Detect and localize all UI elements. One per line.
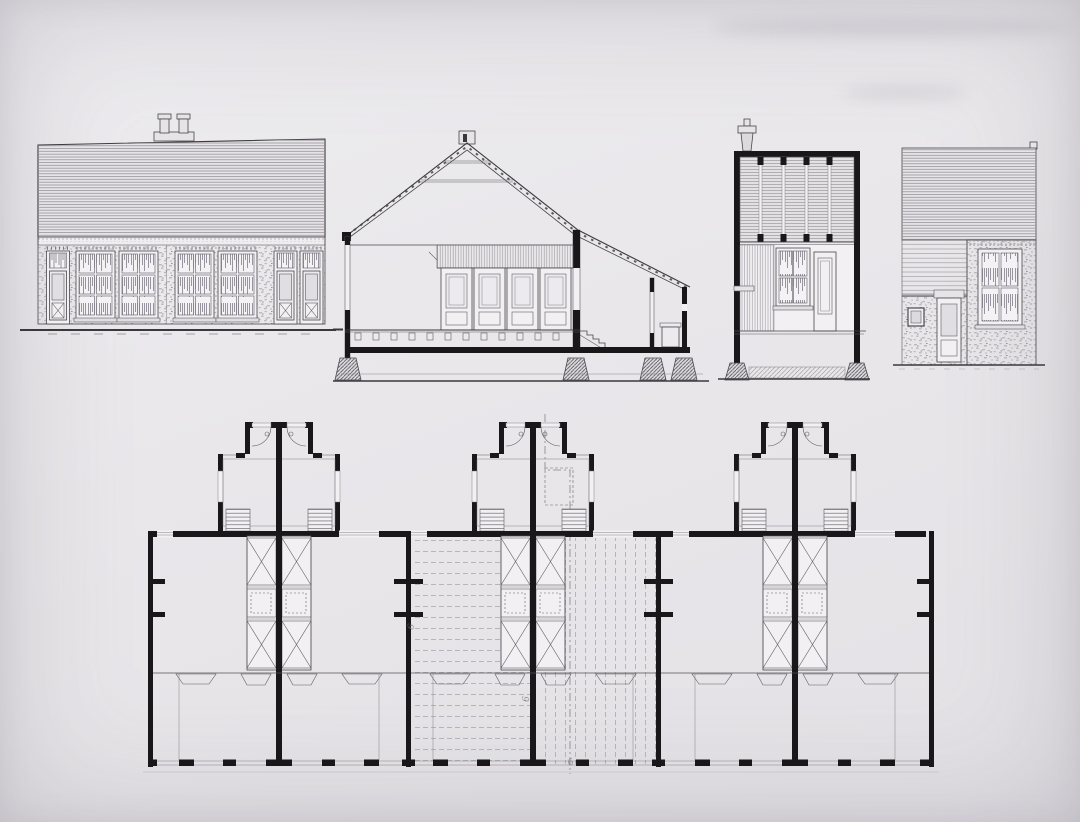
cross-section-drawing (333, 128, 715, 390)
interior-window (773, 248, 813, 310)
roof (38, 139, 325, 237)
outer-wall-left (148, 531, 165, 767)
sash-window (74, 245, 117, 322)
entrance-door (300, 245, 323, 324)
floor-and-joists (333, 330, 580, 341)
brick-tall-block (967, 240, 1036, 365)
chimney-pair (154, 114, 194, 141)
rear-window (975, 249, 1025, 329)
foundation (718, 363, 870, 380)
interior-door (814, 252, 836, 331)
water-tank (660, 323, 681, 327)
left-wall (345, 237, 350, 358)
longitudinal-section-drawing (718, 118, 870, 384)
foundation-piers (335, 358, 697, 380)
unit-pair-1 (148, 422, 410, 766)
ground-beam (345, 347, 690, 353)
entrance-door (274, 245, 297, 324)
sash-window (216, 245, 259, 322)
sash-window (173, 245, 216, 322)
cornice (38, 237, 325, 245)
paper-sheet: 6 6 6 (0, 0, 1080, 822)
scan-smudge (845, 86, 965, 99)
small-window (908, 308, 924, 326)
rear-elevation-drawing (893, 138, 1045, 374)
scan-smudge (715, 18, 1070, 36)
front-elevation-drawing (18, 106, 340, 338)
ground-line (893, 365, 1045, 369)
sash-window (117, 245, 160, 322)
lean-to (580, 278, 687, 349)
outer-wall-right (917, 531, 934, 767)
floor-line (734, 331, 866, 334)
chimney (738, 119, 756, 151)
shelf-ledge (734, 286, 754, 291)
interior-wall (734, 245, 854, 331)
entrance-door (47, 245, 70, 324)
cellar-stair (580, 331, 605, 347)
unit-pair-3 (664, 422, 926, 766)
ground-line (20, 330, 336, 334)
floor-plan-drawing (135, 408, 947, 782)
right-wall (573, 230, 580, 352)
brick-lean-to (902, 290, 967, 365)
cupboard-wall (429, 245, 573, 330)
top-beam (734, 151, 860, 157)
rear-door (934, 290, 964, 362)
pencil-annotation: 6 (522, 696, 532, 702)
roof-interior (740, 157, 854, 245)
